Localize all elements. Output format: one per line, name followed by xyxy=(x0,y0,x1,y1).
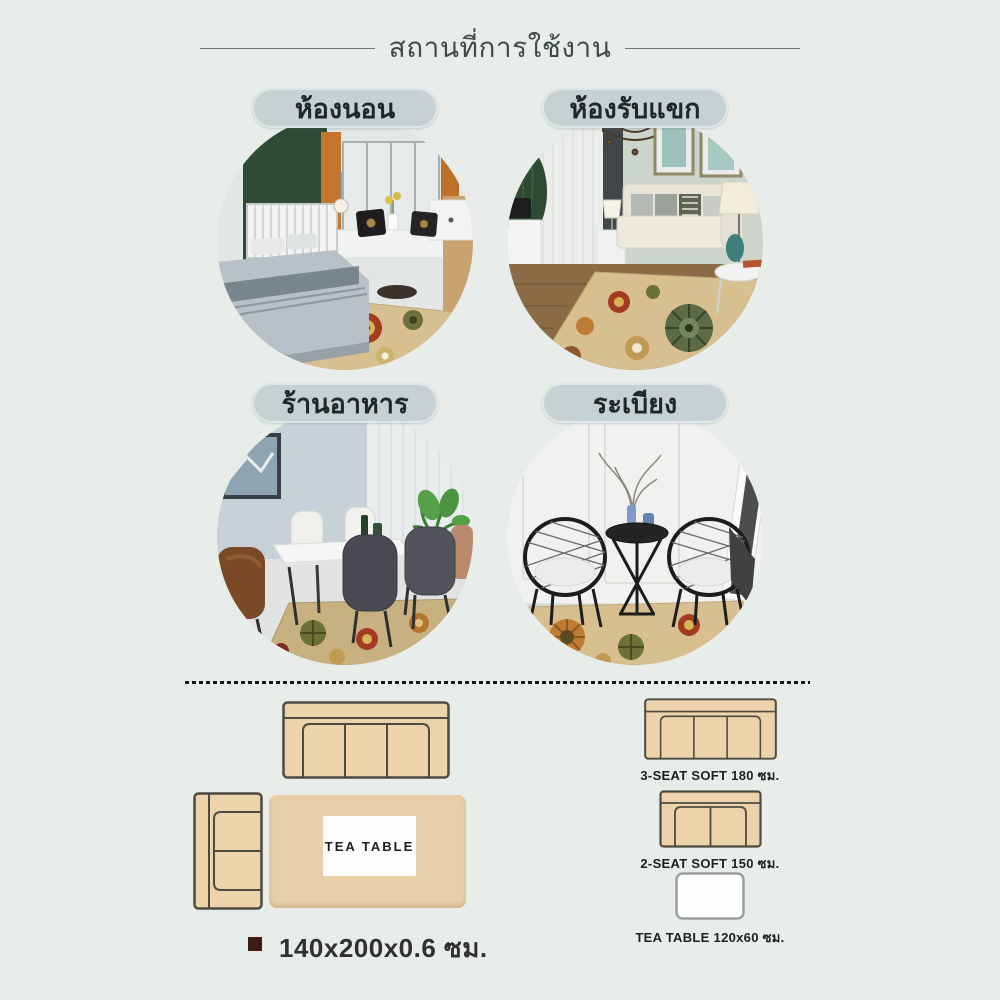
legend-label-3seat: 3-SEAT SOFT 180 ซม. xyxy=(640,765,779,786)
title-rule-left xyxy=(200,48,375,49)
room-card-balcony: ระเบียง xyxy=(505,383,765,665)
size-caption-row: 140x200x0.6 ซม. xyxy=(248,928,488,969)
restaurant-scene xyxy=(217,409,473,665)
legend-tea-table: TEA TABLE 120x60 ซม. xyxy=(630,872,790,948)
room-label-restaurant: ร้านอาหาร xyxy=(252,383,438,423)
page-title: สถานที่การใช้งาน xyxy=(389,26,612,70)
legend-sofa-2seat-diagram xyxy=(659,790,762,848)
room-card-living-room: ห้องรับแขก xyxy=(505,88,765,370)
restaurant-photo xyxy=(217,409,473,665)
layout-sofa-3seat xyxy=(282,701,450,779)
tv-console xyxy=(507,220,541,268)
title-rule-right xyxy=(625,48,800,49)
wall-art xyxy=(223,435,279,497)
room-label-living-room: ห้องรับแขก xyxy=(542,88,728,128)
room-card-bedroom: ห้องนอน xyxy=(215,88,475,370)
layout-sofa-2seat xyxy=(193,792,263,910)
legend-tea-table-diagram xyxy=(675,872,745,920)
legend-label-tea-table: TEA TABLE 120x60 ซม. xyxy=(635,927,784,948)
balcony-scene xyxy=(507,409,763,665)
legend-sofa-2seat: 2-SEAT SOFT 150 ซม. xyxy=(630,790,790,874)
legend-sofa-3seat-diagram xyxy=(644,698,777,760)
bedroom-photo xyxy=(217,114,473,370)
room-label-bedroom: ห้องนอน xyxy=(252,88,438,128)
room-label-balcony: ระเบียง xyxy=(542,383,728,423)
living-room-scene xyxy=(507,114,763,370)
product-usage-infographic: สถานที่การใช้งาน ห้องนอน xyxy=(0,0,1000,1000)
legend-sofa-3seat: 3-SEAT SOFT 180 ซม. xyxy=(630,698,790,786)
square-bullet xyxy=(248,937,262,951)
dashed-divider xyxy=(185,681,810,684)
living-room-photo xyxy=(507,114,763,370)
section-header: สถานที่การใช้งาน xyxy=(200,30,800,66)
tea-table-label: TEA TABLE xyxy=(325,839,415,854)
bedroom-scene xyxy=(217,114,473,370)
legend-label-2seat: 2-SEAT SOFT 150 ซม. xyxy=(640,853,779,874)
size-caption: 140x200x0.6 ซม. xyxy=(279,928,488,969)
balcony-photo xyxy=(507,409,763,665)
stool xyxy=(377,285,417,299)
layout-tea-table: TEA TABLE xyxy=(323,816,416,876)
brown-chair xyxy=(217,547,265,649)
tv xyxy=(507,198,531,218)
room-card-restaurant: ร้านอาหาร xyxy=(215,383,475,665)
